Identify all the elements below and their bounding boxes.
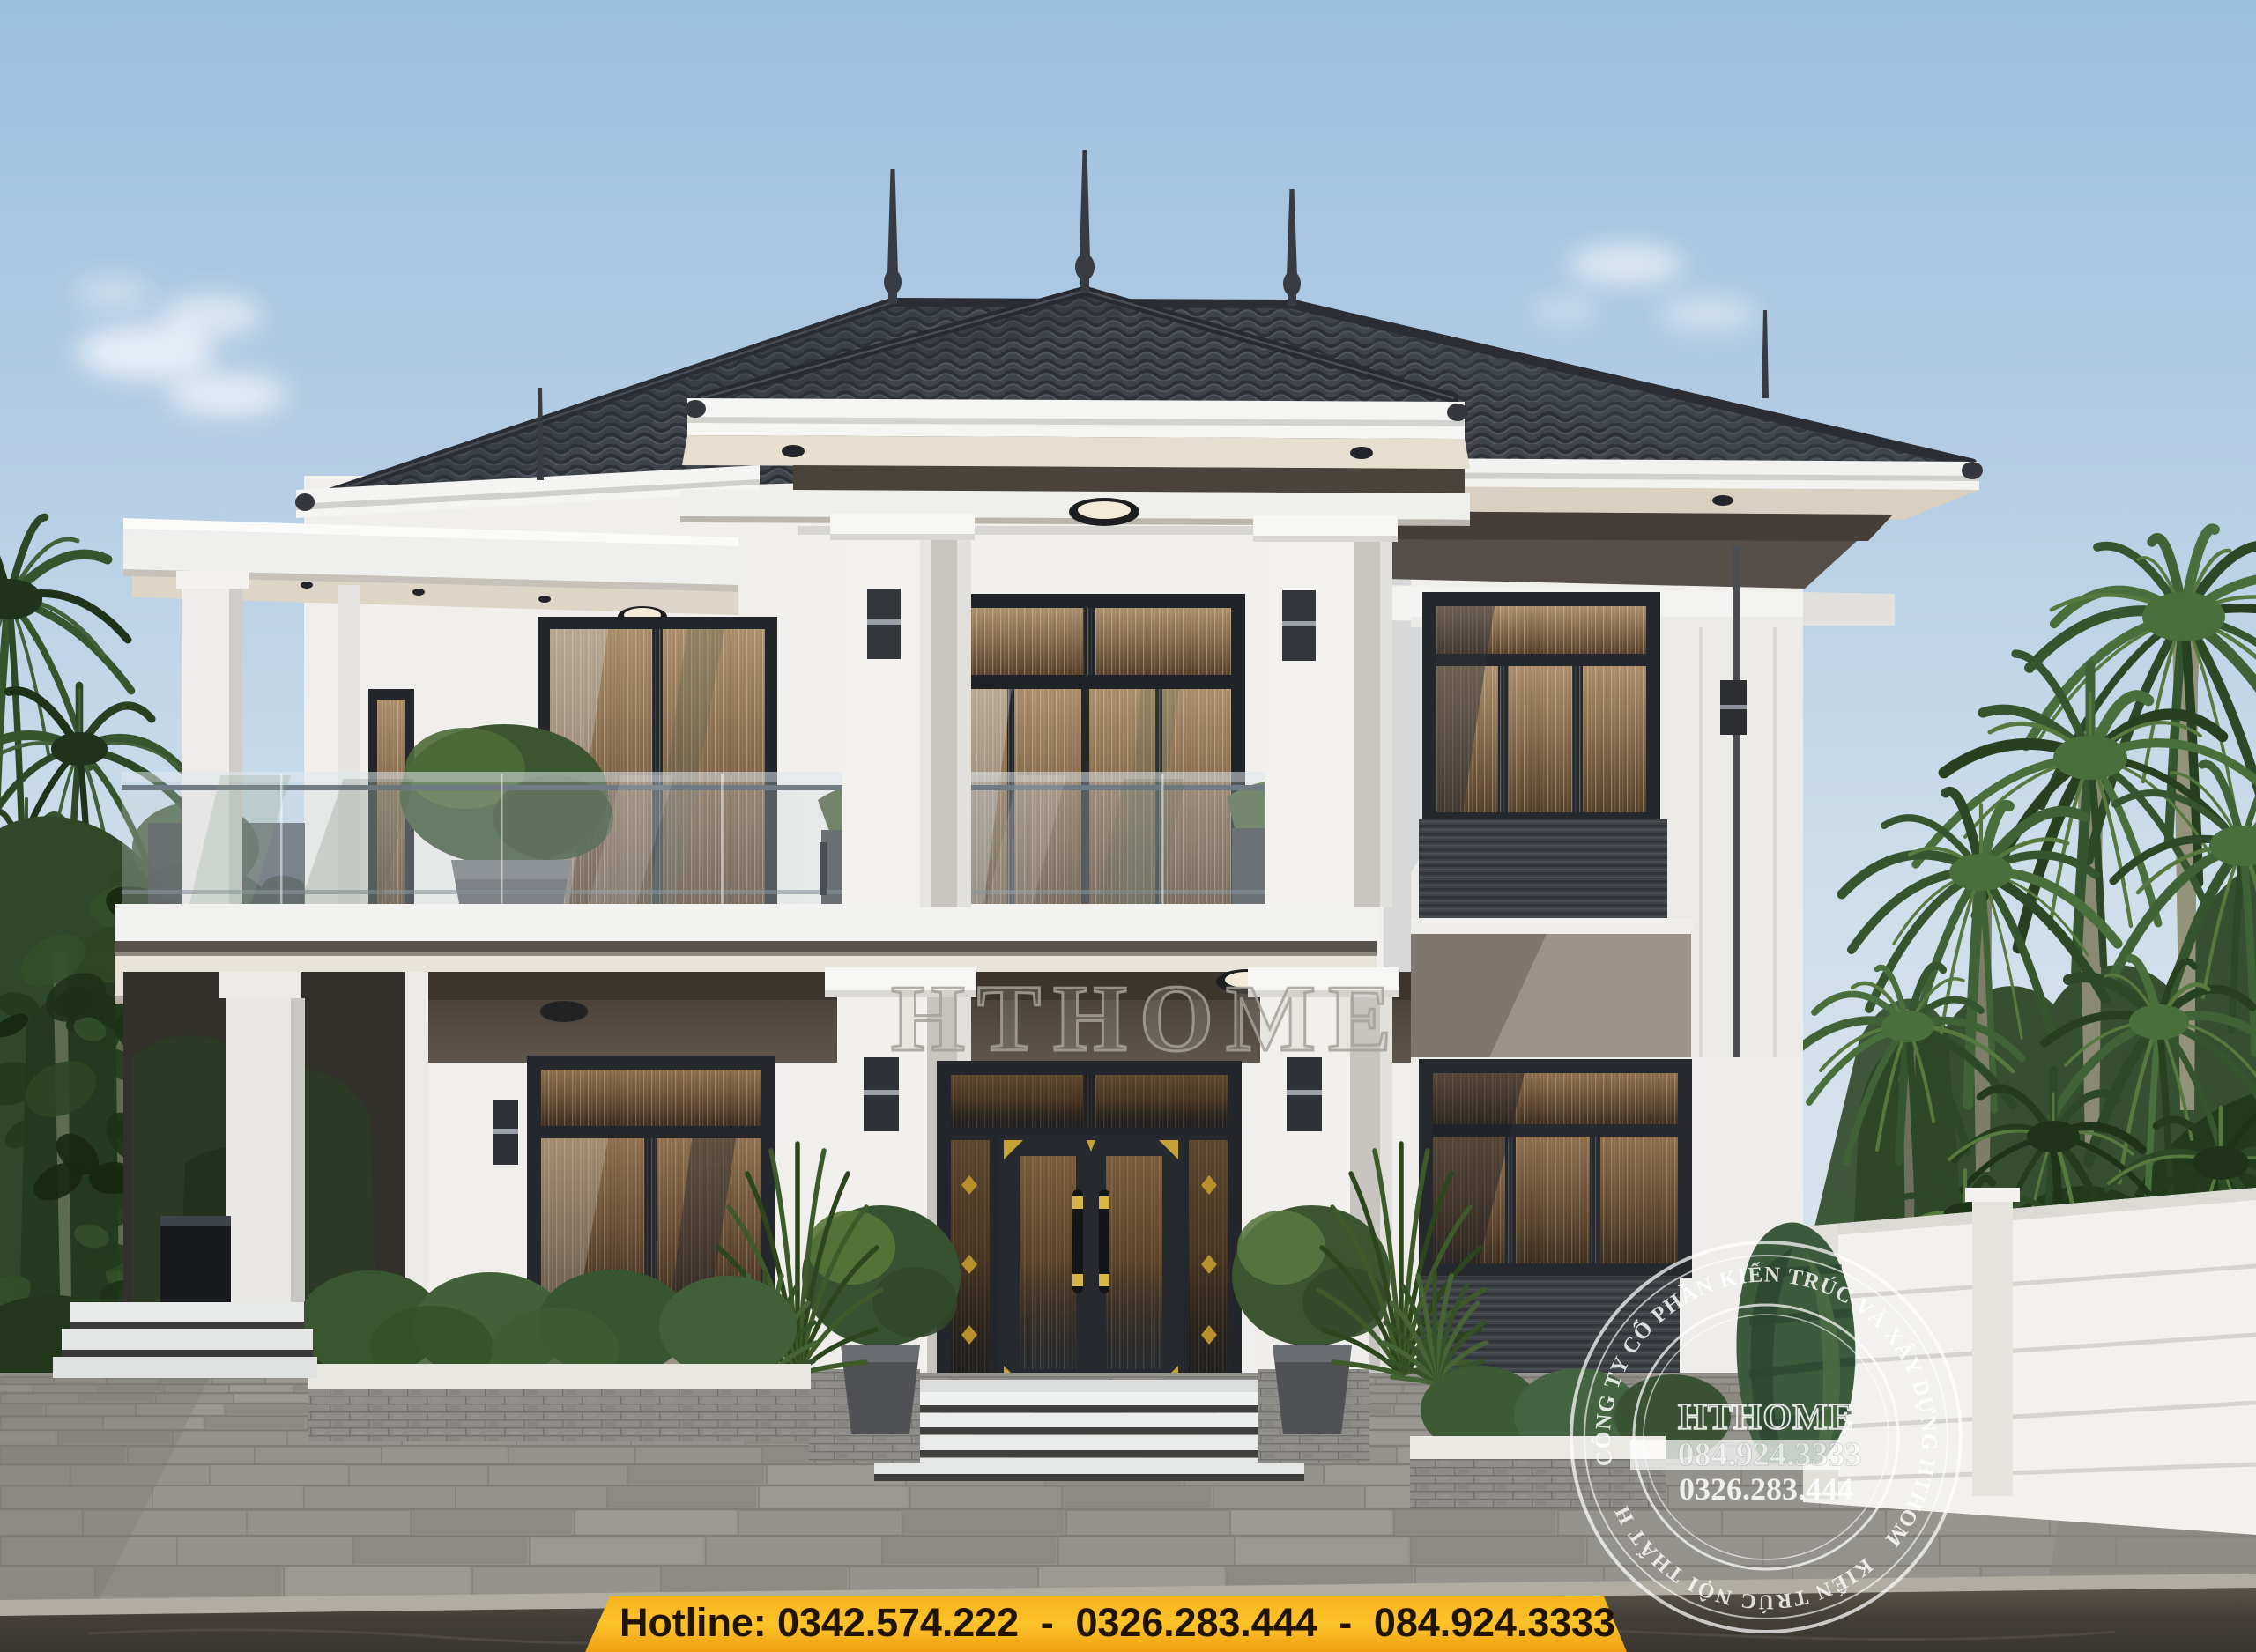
svg-text:0326.283.444: 0326.283.444: [1679, 1471, 1853, 1507]
svg-text:HTHOME: HTHOME: [1678, 1397, 1854, 1438]
svg-text:084.924.3333: 084.924.3333: [1678, 1436, 1862, 1473]
svg-text:Hotline: 0342.574.222 - 0326: Hotline: 0342.574.222 - 0326.283.444 - 0…: [620, 1600, 1615, 1645]
svg-text:HTHOME: HTHOME: [891, 967, 1404, 1071]
